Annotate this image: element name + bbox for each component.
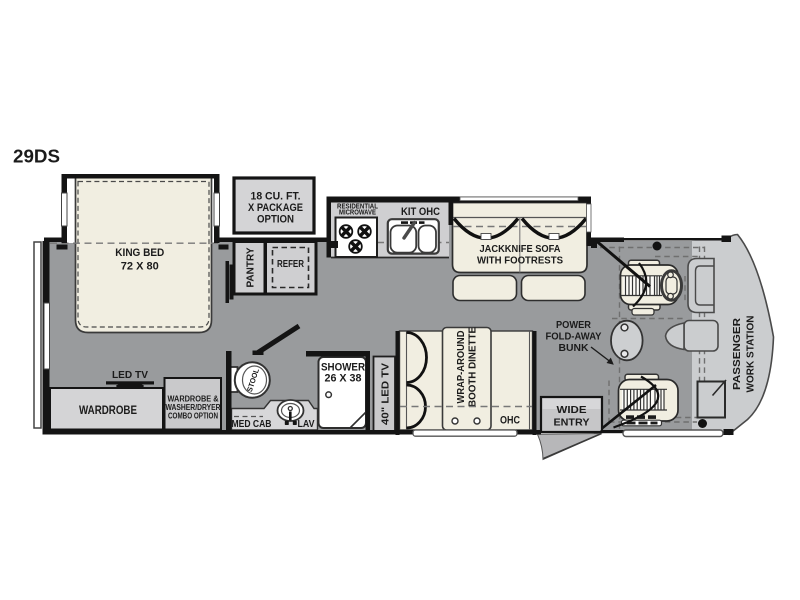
svg-text:WORK STATION: WORK STATION [745, 316, 757, 393]
svg-text:WARDROBE: WARDROBE [79, 405, 137, 417]
svg-text:40" LED TV: 40" LED TV [380, 363, 392, 425]
svg-text:MED CAB: MED CAB [232, 418, 272, 430]
svg-text:BOOTH DINETTE: BOOTH DINETTE [467, 327, 479, 407]
svg-text:X PACKAGE: X PACKAGE [248, 202, 303, 214]
svg-text:KING BED: KING BED [115, 247, 164, 259]
svg-text:FOLD-AWAY: FOLD-AWAY [546, 332, 602, 343]
svg-text:POWER: POWER [556, 320, 592, 331]
svg-text:WITH FOOTRESTS: WITH FOOTRESTS [477, 256, 563, 267]
svg-text:WRAP-AROUND: WRAP-AROUND [455, 330, 467, 403]
svg-text:72 X 80: 72 X 80 [121, 261, 159, 273]
svg-text:ENTRY: ENTRY [554, 417, 590, 429]
svg-text:LED TV: LED TV [112, 369, 148, 381]
svg-text:18 CU. FT.: 18 CU. FT. [251, 191, 301, 203]
svg-text:BUNK: BUNK [559, 343, 590, 354]
svg-text:KIT OHC: KIT OHC [401, 206, 440, 218]
svg-text:REFER: REFER [277, 258, 304, 270]
svg-text:29DS: 29DS [13, 146, 60, 167]
svg-text:OPTION: OPTION [257, 214, 294, 226]
svg-text:JACKKNIFE SOFA: JACKKNIFE SOFA [480, 244, 561, 255]
svg-text:PASSENGER: PASSENGER [731, 318, 743, 390]
svg-text:MICROWAVE: MICROWAVE [339, 210, 376, 217]
svg-text:WIDE: WIDE [557, 404, 587, 416]
svg-text:LAV: LAV [298, 418, 315, 430]
svg-text:PANTRY: PANTRY [245, 248, 257, 288]
svg-text:26 X 38: 26 X 38 [325, 373, 362, 385]
svg-text:COMBO OPTION: COMBO OPTION [168, 412, 218, 421]
svg-text:OHC: OHC [500, 415, 520, 427]
